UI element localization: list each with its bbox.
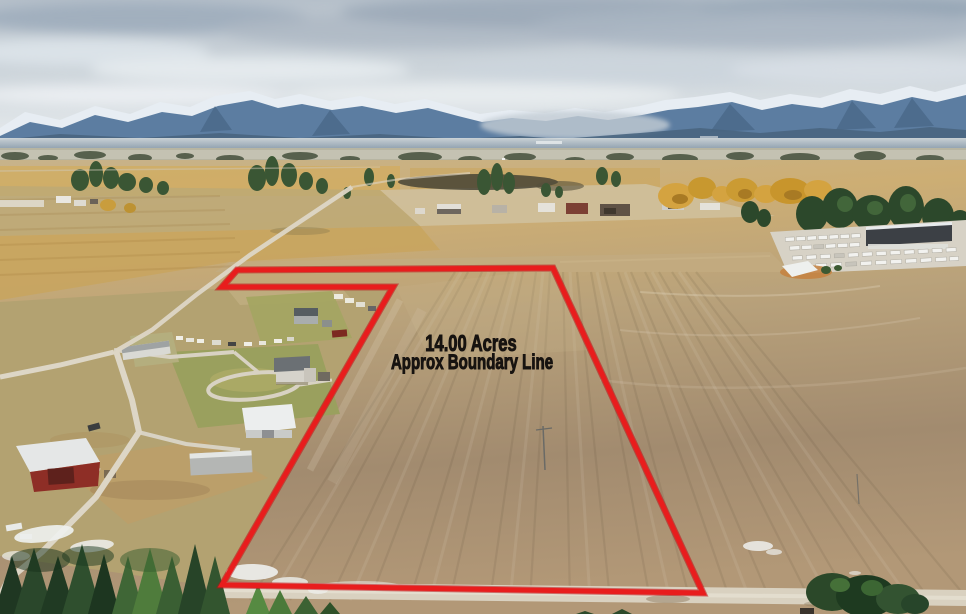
boundary-note-label: Approx Boundary Line xyxy=(391,349,553,373)
white-barn xyxy=(242,404,296,438)
aerial-property-photo: 14.00 Acres Approx Boundary Line xyxy=(0,0,966,614)
manufactured-home xyxy=(190,450,253,475)
